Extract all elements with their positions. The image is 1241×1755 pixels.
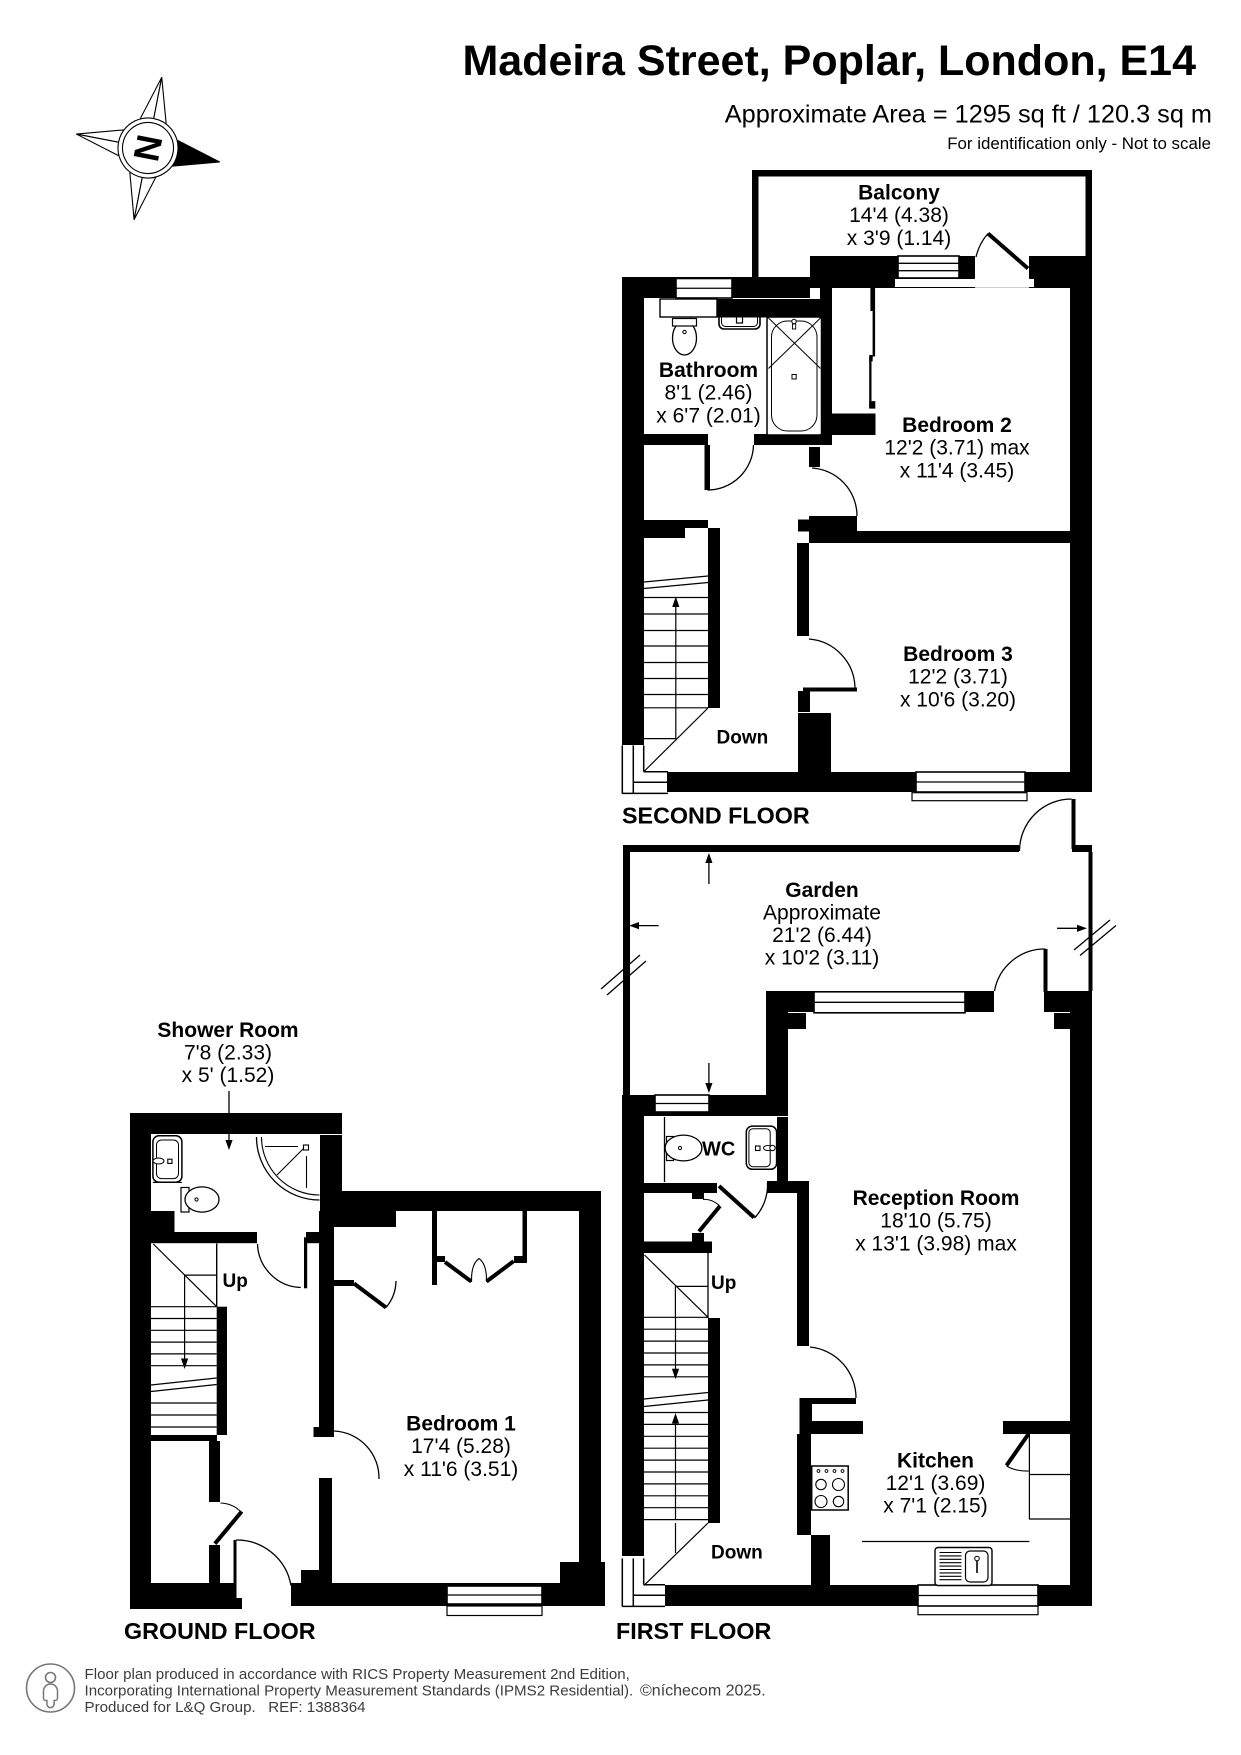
svg-text:Bedroom 1: Bedroom 1	[406, 1413, 516, 1436]
svg-text:17'4 (5.28): 17'4 (5.28)	[411, 1435, 511, 1458]
svg-text:FIRST FLOOR: FIRST FLOOR	[616, 1618, 771, 1644]
svg-text:Up: Up	[223, 1271, 248, 1292]
svg-text:14'4 (4.38): 14'4 (4.38)	[849, 204, 949, 227]
svg-text:Bedroom 3: Bedroom 3	[903, 643, 1013, 666]
svg-text:Madeira Street, Poplar, London: Madeira Street, Poplar, London, E14	[462, 37, 1196, 85]
svg-text:Produced for L&Q Group. REF:: Produced for L&Q Group. REF: 1388364	[85, 1699, 366, 1716]
svg-text:Balcony: Balcony	[858, 182, 940, 205]
svg-text:x 5' (1.52): x 5' (1.52)	[182, 1064, 275, 1087]
svg-text:x 3'9 (1.14): x 3'9 (1.14)	[847, 227, 951, 250]
svg-text:18'10 (5.75): 18'10 (5.75)	[880, 1210, 991, 1233]
svg-text:SECOND FLOOR: SECOND FLOOR	[622, 803, 810, 829]
svg-text:Bathroom: Bathroom	[659, 359, 758, 382]
svg-text:x 10'6 (3.20): x 10'6 (3.20)	[900, 689, 1016, 712]
svg-text:Kitchen: Kitchen	[897, 1450, 974, 1473]
svg-text:Approximate: Approximate	[763, 902, 881, 925]
svg-text:©níchecom 2025.: ©níchecom 2025.	[640, 1683, 766, 1700]
svg-text:Up: Up	[711, 1273, 736, 1294]
svg-text:Floor plan produced in accorda: Floor plan produced in accordance with R…	[85, 1666, 630, 1683]
svg-text:Incorporating International Pr: Incorporating International Property Mea…	[85, 1683, 634, 1700]
svg-text:GROUND FLOOR: GROUND FLOOR	[124, 1618, 316, 1644]
svg-text:7'8 (2.33): 7'8 (2.33)	[184, 1042, 272, 1065]
svg-text:12'1 (3.69): 12'1 (3.69)	[886, 1472, 986, 1495]
svg-text:Approximate Area = 1295 sq ft: Approximate Area = 1295 sq ft / 120.3 sq…	[725, 101, 1212, 129]
svg-text:Reception Room: Reception Room	[853, 1187, 1020, 1210]
svg-text:Bedroom 2: Bedroom 2	[902, 414, 1012, 437]
svg-text:Down: Down	[711, 1543, 763, 1564]
svg-text:Down: Down	[717, 728, 769, 749]
svg-text:Shower Room: Shower Room	[157, 1019, 298, 1042]
svg-text:12'2 (3.71) max: 12'2 (3.71) max	[884, 437, 1030, 460]
svg-text:x 6'7 (2.01): x 6'7 (2.01)	[656, 405, 760, 428]
svg-text:For identification only - Not: For identification only - Not to scale	[947, 134, 1211, 153]
svg-text:x 7'1 (2.15): x 7'1 (2.15)	[883, 1495, 987, 1518]
svg-text:x 10'2 (3.11): x 10'2 (3.11)	[765, 947, 880, 970]
svg-text:x 11'6 (3.51): x 11'6 (3.51)	[404, 1458, 519, 1481]
svg-text:x 13'1 (3.98) max: x 13'1 (3.98) max	[855, 1233, 1017, 1256]
svg-text:x 11'4 (3.45): x 11'4 (3.45)	[900, 460, 1015, 483]
svg-text:21'2 (6.44): 21'2 (6.44)	[772, 924, 872, 947]
svg-text:Garden: Garden	[785, 879, 859, 902]
svg-text:12'2 (3.71): 12'2 (3.71)	[908, 666, 1008, 689]
svg-text:8'1 (2.46): 8'1 (2.46)	[664, 382, 752, 405]
svg-text:WC: WC	[702, 1139, 735, 1161]
